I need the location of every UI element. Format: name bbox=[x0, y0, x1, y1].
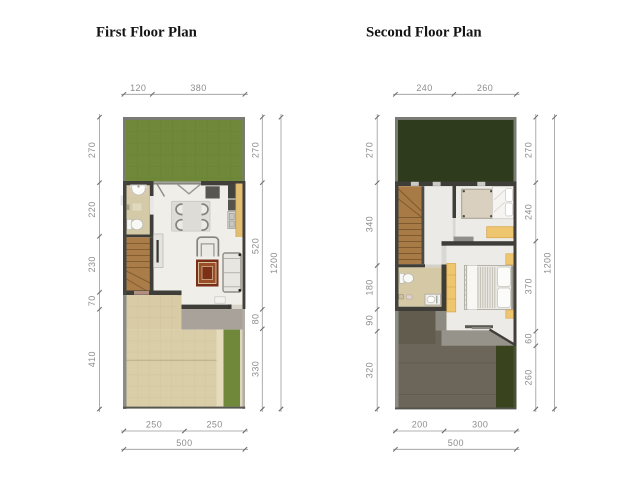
svg-text:180: 180 bbox=[365, 279, 375, 295]
svg-text:380: 380 bbox=[190, 83, 206, 93]
svg-text:520: 520 bbox=[251, 238, 261, 254]
svg-text:250: 250 bbox=[146, 420, 162, 430]
svg-text:330: 330 bbox=[251, 361, 261, 377]
svg-text:500: 500 bbox=[448, 438, 464, 448]
svg-text:270: 270 bbox=[251, 142, 261, 158]
svg-text:260: 260 bbox=[523, 369, 533, 385]
svg-text:220: 220 bbox=[87, 201, 97, 217]
svg-text:270: 270 bbox=[87, 142, 97, 158]
svg-text:90: 90 bbox=[365, 315, 375, 326]
svg-text:230: 230 bbox=[87, 256, 97, 272]
svg-text:340: 340 bbox=[365, 216, 375, 232]
svg-text:250: 250 bbox=[206, 420, 222, 430]
svg-text:320: 320 bbox=[365, 362, 375, 378]
svg-text:1200: 1200 bbox=[543, 252, 553, 274]
svg-text:70: 70 bbox=[87, 295, 97, 306]
svg-text:First Floor Plan: First Floor Plan bbox=[96, 25, 197, 41]
svg-text:270: 270 bbox=[523, 142, 533, 158]
svg-text:60: 60 bbox=[523, 333, 533, 344]
svg-text:120: 120 bbox=[130, 83, 146, 93]
svg-text:80: 80 bbox=[251, 314, 261, 325]
svg-text:1200: 1200 bbox=[269, 252, 279, 274]
svg-text:410: 410 bbox=[87, 351, 97, 367]
svg-text:200: 200 bbox=[412, 420, 428, 430]
svg-text:240: 240 bbox=[523, 204, 533, 220]
svg-text:Second Floor Plan: Second Floor Plan bbox=[366, 25, 482, 41]
svg-text:370: 370 bbox=[523, 278, 533, 294]
svg-text:500: 500 bbox=[176, 438, 192, 448]
svg-text:270: 270 bbox=[365, 142, 375, 158]
svg-text:300: 300 bbox=[472, 420, 488, 430]
svg-text:240: 240 bbox=[416, 83, 432, 93]
svg-text:260: 260 bbox=[477, 83, 493, 93]
